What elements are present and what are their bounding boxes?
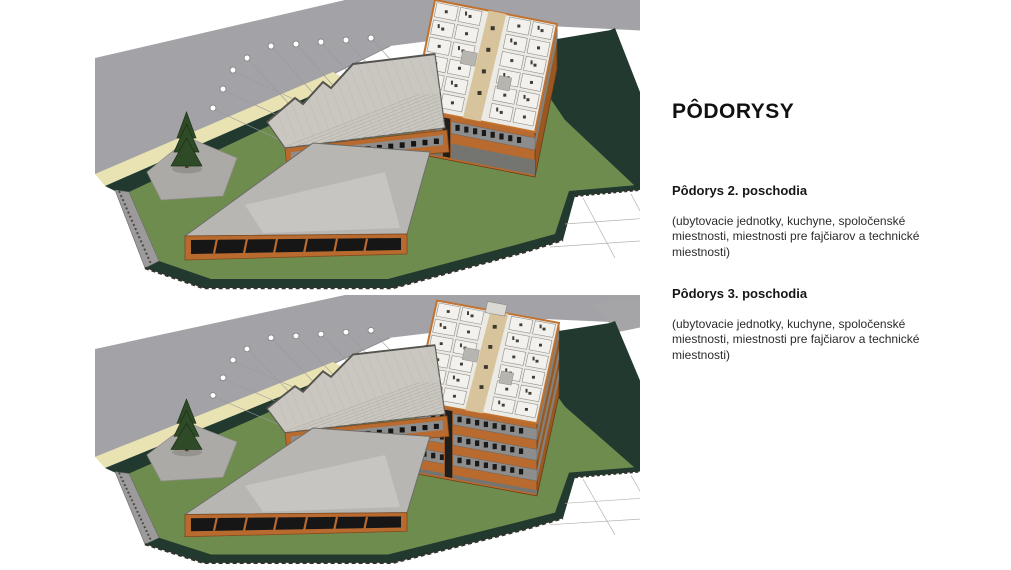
page-title: PÔDORYSY — [672, 100, 928, 123]
figure-axonometric-cutaway-3rd-floor — [95, 295, 640, 568]
axonometric-view-2nd-floor-svg — [95, 0, 640, 290]
section-body-floor-2: (ubytovacie jednotky, kuchyne, spoločens… — [672, 214, 928, 261]
text-panel: PÔDORYSY Pôdorys 2. poschodia (ubytovaci… — [672, 100, 928, 363]
section-heading-floor-3: Pôdorys 3. poschodia — [672, 286, 928, 302]
axonometric-view-3rd-floor-svg — [95, 295, 640, 568]
section-floor-2: Pôdorys 2. poschodia (ubytovacie jednotk… — [672, 183, 928, 260]
section-body-floor-3: (ubytovacie jednotky, kuchyne, spoločens… — [672, 317, 928, 364]
section-floor-3: Pôdorys 3. poschodia (ubytovacie jednotk… — [672, 286, 928, 363]
section-heading-floor-2: Pôdorys 2. poschodia — [672, 183, 928, 199]
figure-axonometric-cutaway-2nd-floor — [95, 0, 640, 290]
